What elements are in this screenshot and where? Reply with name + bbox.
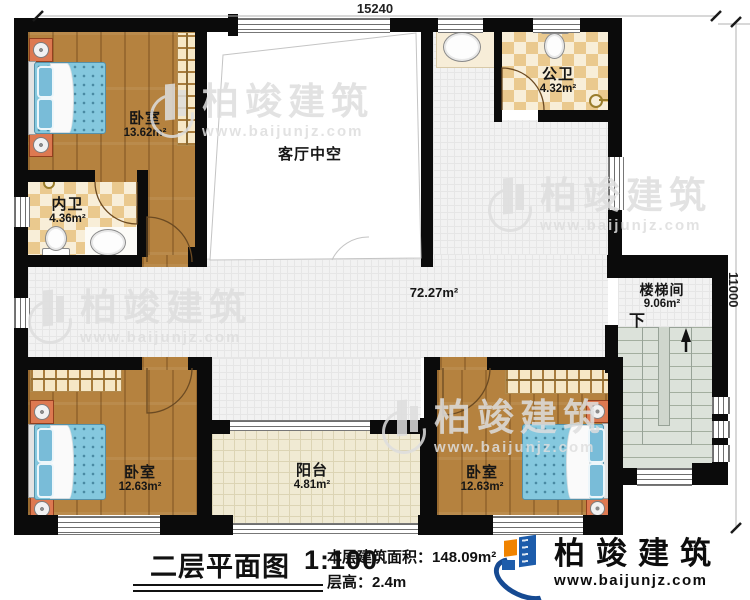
window (637, 468, 692, 486)
wall-segment (607, 255, 728, 278)
floor-plan: 卧室 13.62m² 内卫 4.36m² 客厅中空 公卫 4.32m² 72.2… (0, 0, 750, 600)
stair-direction-label: 下 (629, 307, 645, 331)
floor-height-text: 层高：2.4m (327, 571, 406, 592)
bed (28, 400, 106, 520)
window (238, 18, 390, 33)
toilet-bowl (45, 226, 67, 251)
wall-segment (605, 325, 618, 373)
door-threshold (142, 255, 188, 267)
wall-segment (608, 210, 622, 257)
window (712, 421, 730, 438)
hallway-floor (28, 255, 608, 358)
window (14, 197, 30, 227)
nightstand (586, 400, 609, 423)
dimension-right: 11000 (726, 272, 741, 307)
corridor-floor-right (494, 120, 608, 255)
pillow (37, 463, 54, 498)
window (712, 397, 730, 414)
toilet-bowl (544, 33, 565, 59)
wall-segment (612, 468, 637, 485)
floor-drain-icon (589, 94, 603, 108)
wall-segment (14, 170, 95, 182)
wardrobe (505, 369, 609, 394)
wall-segment (483, 18, 533, 32)
title-underline (133, 590, 323, 592)
brand-website: www.baijunjz.com (554, 572, 722, 589)
window (14, 298, 30, 328)
nightstand (29, 133, 53, 157)
room-label-bath-private: 内卫 4.36m² (35, 196, 100, 226)
dim-tick (711, 11, 721, 21)
bed-blanket (566, 425, 590, 499)
window (230, 420, 370, 431)
window (608, 157, 624, 210)
room-label-bedroom-bl: 卧室 12.63m² (100, 464, 180, 494)
pillow (588, 428, 605, 463)
window (233, 523, 418, 534)
wall-segment (14, 515, 58, 535)
pillow (37, 98, 54, 130)
wall-segment (608, 18, 622, 157)
dim-tick (731, 523, 741, 533)
room-label-bath-public: 公卫 4.32m² (527, 66, 589, 96)
bed-mattress (34, 62, 106, 134)
corridor-floor-balcony (212, 358, 421, 422)
wall-segment (14, 357, 142, 370)
window (438, 18, 483, 33)
room-label-bedroom-tl: 卧室 13.62m² (105, 110, 185, 140)
wall-segment (228, 14, 238, 36)
wall-segment (370, 420, 424, 434)
wall-segment (420, 418, 437, 535)
pillow (37, 428, 54, 463)
wall-segment (195, 30, 207, 255)
room-label-hallway: 72.27m² (398, 286, 470, 301)
living-void-area (207, 30, 421, 258)
dimension-top: 15240 (340, 1, 410, 16)
dim-tick (731, 17, 741, 27)
window (493, 516, 583, 535)
wall-segment (692, 463, 728, 485)
stair-rail-slot (658, 327, 670, 426)
title-underline (133, 584, 323, 586)
window (712, 445, 730, 462)
wardrobe (30, 368, 122, 392)
pillow (588, 463, 605, 498)
sink (443, 32, 481, 62)
wall-segment (137, 170, 148, 257)
brand-logo-icon (492, 536, 550, 594)
door-threshold (142, 357, 188, 370)
brand-block: 柏竣建筑 www.baijunjz.com (492, 536, 722, 594)
nightstand (30, 400, 54, 424)
wall-segment (14, 18, 28, 535)
room-label-bedroom-br: 卧室 12.63m² (442, 464, 522, 494)
bed (520, 400, 608, 519)
wall-segment (421, 30, 433, 267)
drawing-title: 二层平面图 (150, 545, 290, 584)
nightstand (29, 38, 53, 62)
wall-segment (212, 420, 230, 434)
bed (28, 38, 106, 156)
wall-segment (494, 28, 502, 122)
wall-segment (197, 357, 212, 535)
wall-segment (14, 255, 142, 267)
floor-area-text: 本层建筑面积：148.09m² (327, 546, 496, 567)
pillow (37, 66, 54, 98)
wall-segment (608, 357, 623, 535)
brand-name: 柏竣建筑 (554, 536, 722, 572)
window (533, 18, 580, 33)
room-label-living-void: 客厅中空 (263, 146, 357, 163)
door-threshold (440, 357, 487, 370)
bed-mattress (34, 424, 106, 500)
wall-segment (487, 357, 608, 370)
window (58, 516, 160, 535)
bed-mattress (522, 424, 604, 500)
room-label-balcony: 阳台 4.81m² (278, 462, 346, 492)
wall-segment (424, 357, 437, 418)
sink (90, 229, 126, 256)
